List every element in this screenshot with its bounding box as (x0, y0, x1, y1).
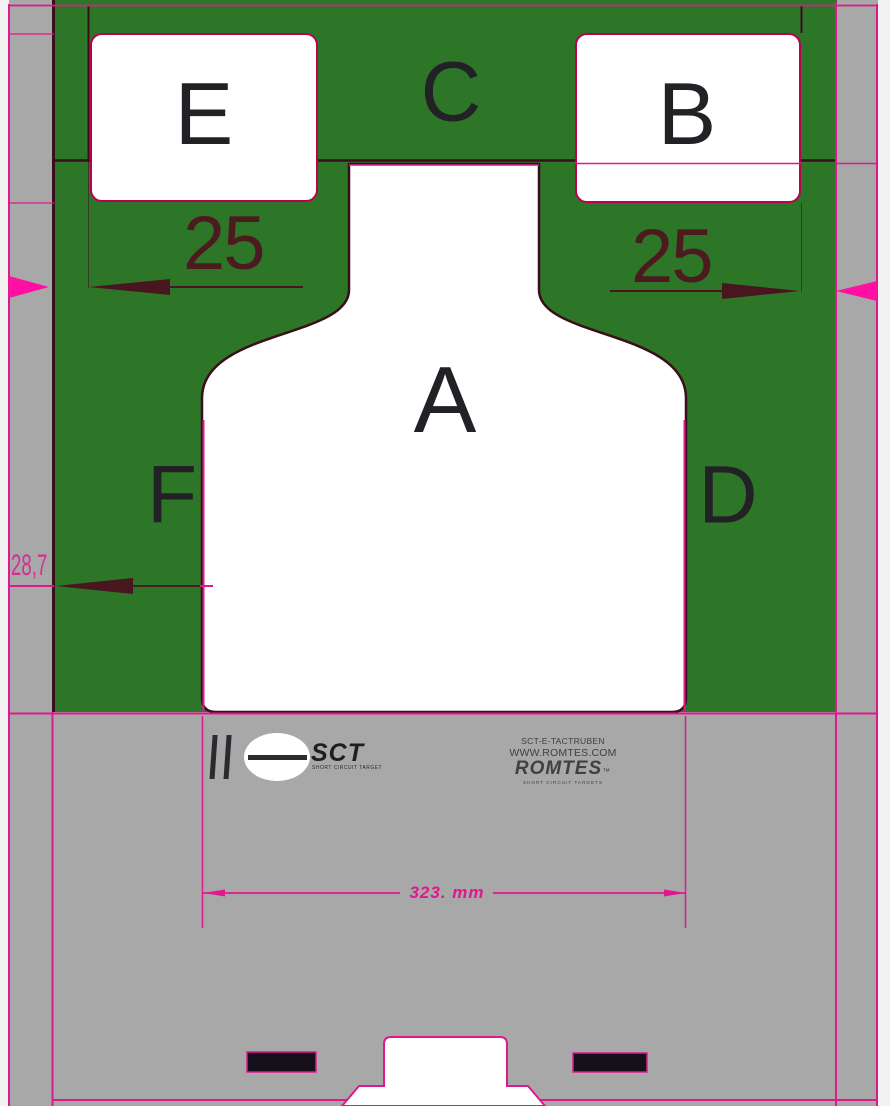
romtes-brand-tagline: SHORT CIRCUIT TARGETS (503, 780, 623, 785)
zone-label-f: F (147, 454, 197, 536)
sct-logo-tagline: SHORT CIRCUIT TARGET (312, 766, 382, 771)
dim-text-left-25: 25 (183, 206, 264, 282)
romtes-brand-suffix: ™ (602, 767, 611, 776)
zone-label-d: D (698, 454, 757, 536)
zone-label-c: C (421, 49, 482, 133)
dim-text-right-25: 25 (631, 219, 712, 295)
romtes-text-block: SCT-E-TACTRUBEN WWW.ROMTES.COM ROMTES™ S… (503, 737, 623, 785)
zone-label-a: A (414, 353, 477, 447)
dim-text-width: 323. mm (409, 883, 484, 903)
zone-label-e: E (175, 70, 234, 158)
zone-label-b: B (658, 70, 717, 158)
target-drawing-canvas: E C B A F D 25 25 28,7 323. mm SCT SHORT… (0, 0, 890, 1106)
romtes-brand-word: ROMTES (515, 758, 602, 779)
romtes-brand-text: ROMTES™ (503, 759, 623, 780)
dim-text-287: 28,7 (11, 551, 47, 581)
product-code-text: SCT-E-TACTRUBEN (503, 737, 623, 747)
sct-logo-text: SCT (311, 741, 364, 766)
